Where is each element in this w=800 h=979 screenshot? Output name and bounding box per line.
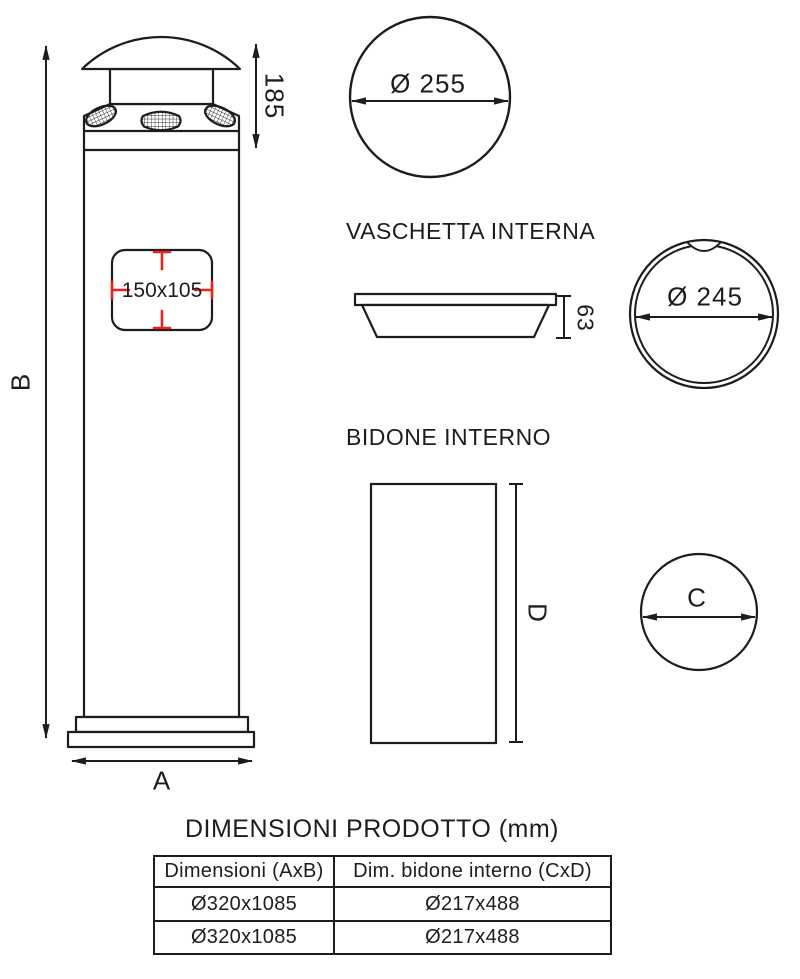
table-header-dimensioni: Dimensioni (AxB)	[154, 856, 334, 887]
ashtray-opening-center	[141, 112, 180, 131]
table-header-row: Dimensioni (AxB) Dim. bidone interno (Cx…	[154, 856, 611, 887]
tray-section-title: VASCHETTA INTERNA	[346, 218, 595, 245]
table-row: Ø320x1085 Ø217x488	[154, 921, 611, 954]
label-top-diameter: Ø 255	[390, 69, 466, 100]
base-step-upper	[76, 717, 248, 732]
bollard-neck	[110, 69, 213, 104]
label-overall-width-a: A	[153, 766, 171, 797]
label-tray-diameter: Ø 245	[667, 282, 743, 313]
tray-rim	[355, 294, 556, 305]
technical-drawing-page: B 185 A 150x105 Ø 255 VASCHETTA INTERNA …	[0, 0, 800, 979]
label-tray-height-63: 63	[572, 304, 599, 332]
tray-height-dimension	[556, 296, 571, 338]
base-step-lower	[68, 732, 254, 747]
table-cell-dimensioni-1: Ø320x1085	[154, 887, 334, 921]
tray-top-view	[630, 238, 778, 388]
bin-section-title: BIDONE INTERNO	[346, 424, 551, 451]
table-cell-bidone-2: Ø217x488	[334, 921, 611, 954]
label-bin-diameter-c: C	[687, 583, 707, 614]
bin-front-view	[371, 484, 523, 743]
product-table-title: DIMENSIONI PRODOTTO (mm)	[185, 815, 559, 844]
bollard-front-view	[68, 37, 254, 747]
label-opening-size: 150x105	[122, 279, 203, 303]
table-cell-dimensioni-2: Ø320x1085	[154, 921, 334, 954]
label-overall-height-b: B	[6, 373, 37, 391]
bin-rectangle	[371, 484, 496, 743]
tray-outer-circle	[630, 240, 778, 388]
bollard-body	[84, 104, 239, 717]
label-bin-height-d: D	[522, 603, 553, 623]
tray-side-view	[355, 294, 556, 337]
dimensions-table: Dimensioni (AxB) Dim. bidone interno (Cx…	[153, 855, 612, 955]
table-header-bidone: Dim. bidone interno (CxD)	[334, 856, 611, 887]
tray-inner-circle	[635, 245, 773, 383]
table-row: Ø320x1085 Ø217x488	[154, 887, 611, 921]
tray-body	[362, 305, 549, 337]
dome-cap	[82, 37, 240, 69]
tray-height-lines	[556, 296, 571, 338]
table-cell-bidone-1: Ø217x488	[334, 887, 611, 921]
label-head-height-185: 185	[259, 73, 290, 119]
